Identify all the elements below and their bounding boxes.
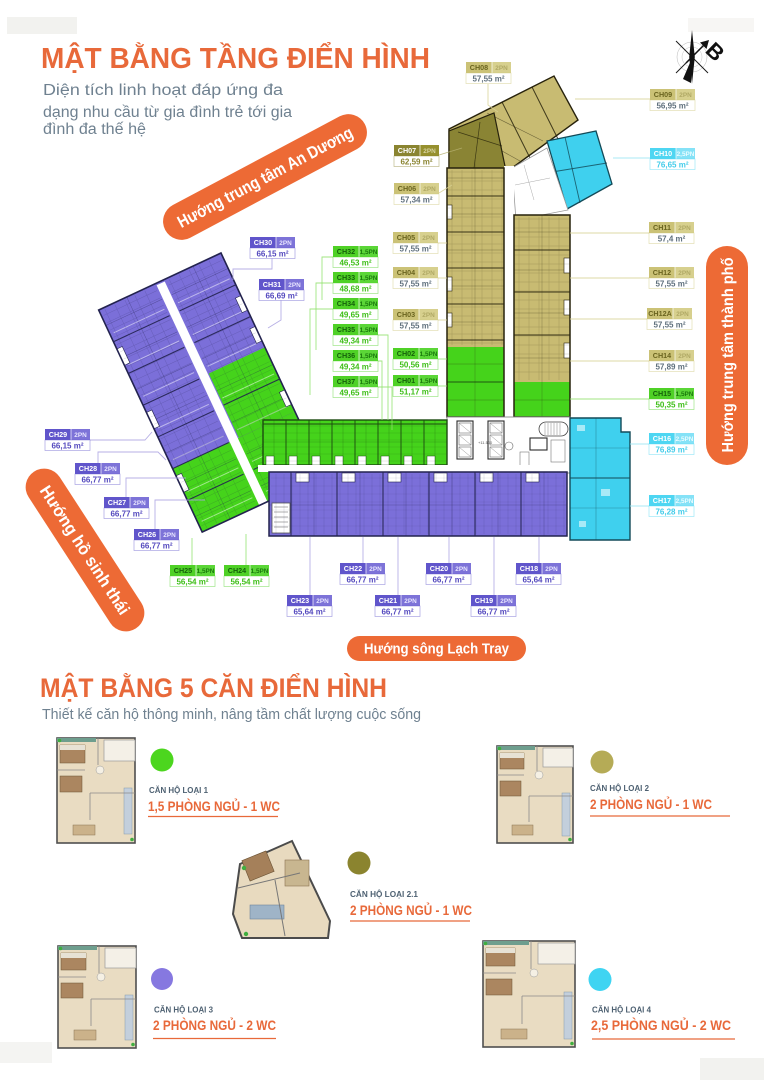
svg-text:57,55 m²: 57,55 m² <box>399 244 431 253</box>
svg-text:66,77 m²: 66,77 m² <box>346 575 378 584</box>
svg-text:CH36: CH36 <box>337 351 355 360</box>
svg-text:2 PHÒNG NGỦ - 1 WC: 2 PHÒNG NGỦ - 1 WC <box>590 795 712 812</box>
svg-text:CH19: CH19 <box>475 596 493 605</box>
svg-text:62,59 m²: 62,59 m² <box>400 157 432 166</box>
svg-text:57,55 m²: 57,55 m² <box>655 279 687 288</box>
svg-text:2,5 PHÒNG NGỦ - 2 WC: 2,5 PHÒNG NGỦ - 2 WC <box>591 1016 731 1033</box>
svg-text:2PN: 2PN <box>133 500 146 507</box>
svg-text:2PN: 2PN <box>422 312 435 319</box>
svg-text:CĂN HỘ LOẠI 4: CĂN HỘ LOẠI 4 <box>592 1004 651 1015</box>
svg-text:66,15 m²: 66,15 m² <box>51 441 83 450</box>
svg-text:49,65 m²: 49,65 m² <box>339 310 371 319</box>
svg-text:2,5PN: 2,5PN <box>676 498 694 505</box>
svg-text:76,28 m²: 76,28 m² <box>655 507 687 516</box>
svg-text:CH37: CH37 <box>337 377 355 386</box>
svg-text:2PN: 2PN <box>288 282 301 289</box>
svg-text:66,77 m²: 66,77 m² <box>381 607 413 616</box>
svg-text:CH22: CH22 <box>344 564 362 573</box>
svg-text:2PN: 2PN <box>545 566 558 573</box>
svg-text:2PN: 2PN <box>678 225 691 232</box>
svg-text:2PN: 2PN <box>369 566 382 573</box>
svg-text:2PN: 2PN <box>104 466 117 473</box>
svg-text:CH29: CH29 <box>49 430 67 439</box>
svg-text:Hướng trung tâm An Dương: Hướng trung tâm An Dương <box>174 123 356 232</box>
svg-text:CH07: CH07 <box>398 146 416 155</box>
svg-text:51,17 m²: 51,17 m² <box>399 387 431 396</box>
svg-text:CH01: CH01 <box>397 376 415 385</box>
svg-text:CH03: CH03 <box>397 310 415 319</box>
svg-text:CH02: CH02 <box>397 349 415 358</box>
svg-text:CH12: CH12 <box>653 268 671 277</box>
svg-text:CH10: CH10 <box>654 149 672 158</box>
svg-text:CH17: CH17 <box>653 496 671 505</box>
svg-text:2PN: 2PN <box>678 353 691 360</box>
svg-text:65,64 m²: 65,64 m² <box>293 607 325 616</box>
svg-text:2,5PN: 2,5PN <box>676 436 694 443</box>
svg-text:2PN: 2PN <box>423 186 436 193</box>
svg-text:49,34 m²: 49,34 m² <box>339 336 371 345</box>
svg-text:Hướng trung tâm thành phố: Hướng trung tâm thành phố <box>720 257 737 452</box>
svg-text:1,5PN: 1,5PN <box>197 568 215 575</box>
svg-text:CH23: CH23 <box>291 596 309 605</box>
svg-text:CH20: CH20 <box>430 564 448 573</box>
svg-text:2PN: 2PN <box>495 65 508 72</box>
svg-text:57,89 m²: 57,89 m² <box>655 362 687 371</box>
svg-text:2PN: 2PN <box>279 240 292 247</box>
svg-text:49,34 m²: 49,34 m² <box>339 362 371 371</box>
svg-text:CH05: CH05 <box>397 233 415 242</box>
svg-text:1,5PN: 1,5PN <box>676 391 694 398</box>
svg-text:57,55 m²: 57,55 m² <box>399 279 431 288</box>
svg-text:66,77 m²: 66,77 m² <box>110 509 142 518</box>
svg-text:CH18: CH18 <box>520 564 538 573</box>
svg-text:76,65 m²: 76,65 m² <box>656 160 688 169</box>
svg-text:57,55 m²: 57,55 m² <box>399 321 431 330</box>
svg-text:CH25: CH25 <box>174 566 192 575</box>
svg-text:1,5PN: 1,5PN <box>360 249 378 256</box>
svg-text:CĂN HỘ LOẠI 2.1: CĂN HỘ LOẠI 2.1 <box>350 888 418 899</box>
svg-text:56,54 m²: 56,54 m² <box>176 577 208 586</box>
svg-text:66,77 m²: 66,77 m² <box>477 607 509 616</box>
svg-text:1,5 PHÒNG NGỦ - 1 WC: 1,5 PHÒNG NGỦ - 1 WC <box>148 797 280 814</box>
svg-text:66,77 m²: 66,77 m² <box>140 541 172 550</box>
svg-text:49,65 m²: 49,65 m² <box>339 388 371 397</box>
svg-text:57,34 m²: 57,34 m² <box>400 195 432 204</box>
svg-text:2PN: 2PN <box>74 432 87 439</box>
svg-text:Diện tích linh hoạt đáp ứng đa: Diện tích linh hoạt đáp ứng đa <box>43 82 283 99</box>
svg-text:CĂN HỘ LOẠI 3: CĂN HỘ LOẠI 3 <box>154 1004 213 1015</box>
svg-text:CH31: CH31 <box>263 280 281 289</box>
svg-text:2PN: 2PN <box>455 566 468 573</box>
svg-text:CH06: CH06 <box>398 184 416 193</box>
svg-text:CH21: CH21 <box>379 596 397 605</box>
svg-text:1,5PN: 1,5PN <box>420 378 438 385</box>
svg-text:48,68 m²: 48,68 m² <box>339 284 371 293</box>
svg-text:CH34: CH34 <box>337 299 355 308</box>
svg-text:Thiết kế căn hộ thông minh, nâ: Thiết kế căn hộ thông minh, nâng tầm chấ… <box>42 707 421 723</box>
svg-text:MẬT BẰNG 5 CĂN ĐIỂN HÌNH: MẬT BẰNG 5 CĂN ĐIỂN HÌNH <box>40 673 387 703</box>
svg-text:2PN: 2PN <box>422 270 435 277</box>
svg-text:2 PHÒNG NGỦ - 1 WC: 2 PHÒNG NGỦ - 1 WC <box>350 901 472 918</box>
svg-text:66,77 m²: 66,77 m² <box>432 575 464 584</box>
svg-text:Hướng sông Lạch Tray: Hướng sông Lạch Tray <box>364 641 510 658</box>
svg-text:66,69 m²: 66,69 m² <box>265 291 297 300</box>
svg-text:2PN: 2PN <box>163 532 176 539</box>
svg-text:2,5PN: 2,5PN <box>677 151 695 158</box>
svg-text:CH35: CH35 <box>337 325 355 334</box>
svg-text:57,4 m²: 57,4 m² <box>658 234 686 243</box>
svg-text:CH33: CH33 <box>337 273 355 282</box>
svg-text:50,35 m²: 50,35 m² <box>655 400 687 409</box>
svg-text:56,54 m²: 56,54 m² <box>230 577 262 586</box>
svg-text:1,5PN: 1,5PN <box>360 379 378 386</box>
svg-text:CH15: CH15 <box>653 389 671 398</box>
svg-text:CH28: CH28 <box>79 464 97 473</box>
svg-text:66,77 m²: 66,77 m² <box>81 475 113 484</box>
svg-text:1,5PN: 1,5PN <box>360 301 378 308</box>
svg-text:2PN: 2PN <box>404 598 417 605</box>
svg-text:CH30: CH30 <box>254 238 272 247</box>
svg-text:56,95 m²: 56,95 m² <box>656 101 688 110</box>
svg-text:57,55 m²: 57,55 m² <box>653 320 685 329</box>
svg-text:2PN: 2PN <box>678 270 691 277</box>
svg-text:66,15 m²: 66,15 m² <box>256 249 288 258</box>
svg-text:CH11: CH11 <box>653 223 671 232</box>
svg-text:1,5PN: 1,5PN <box>420 351 438 358</box>
svg-text:CH08: CH08 <box>470 63 488 72</box>
svg-text:CH14: CH14 <box>653 351 671 360</box>
svg-text:2PN: 2PN <box>316 598 329 605</box>
svg-text:1,5PN: 1,5PN <box>251 568 269 575</box>
svg-text:CH16: CH16 <box>653 434 671 443</box>
svg-text:dạng nhu cầu từ gia đình trẻ t: dạng nhu cầu từ gia đình trẻ tới gia <box>43 104 292 121</box>
svg-text:76,89 m²: 76,89 m² <box>655 445 687 454</box>
svg-text:CH09: CH09 <box>654 90 672 99</box>
svg-text:1,5PN: 1,5PN <box>360 327 378 334</box>
svg-text:1,5PN: 1,5PN <box>360 353 378 360</box>
svg-text:CĂN HỘ LOẠI 2: CĂN HỘ LOẠI 2 <box>590 782 649 793</box>
svg-text:2PN: 2PN <box>423 148 436 155</box>
svg-text:2PN: 2PN <box>679 92 692 99</box>
svg-text:50,56 m²: 50,56 m² <box>399 360 431 369</box>
svg-text:2 PHÒNG NGỦ - 2 WC: 2 PHÒNG NGỦ - 2 WC <box>153 1016 276 1033</box>
svg-text:2PN: 2PN <box>676 311 689 318</box>
svg-text:2PN: 2PN <box>500 598 513 605</box>
svg-text:65,64 m²: 65,64 m² <box>522 575 554 584</box>
svg-text:CĂN HỘ LOẠI 1: CĂN HỘ LOẠI 1 <box>149 784 208 795</box>
svg-text:CH27: CH27 <box>108 498 126 507</box>
svg-text:1,5PN: 1,5PN <box>360 275 378 282</box>
svg-text:CH24: CH24 <box>228 566 246 575</box>
svg-text:2PN: 2PN <box>422 235 435 242</box>
svg-text:+11.560: +11.560 <box>478 440 493 445</box>
svg-text:CH26: CH26 <box>138 530 156 539</box>
svg-text:46,53 m²: 46,53 m² <box>339 258 371 267</box>
svg-text:CH32: CH32 <box>337 247 355 256</box>
svg-text:CH12A: CH12A <box>648 309 672 318</box>
svg-text:57,55 m²: 57,55 m² <box>472 74 504 83</box>
svg-text:MẬT BẰNG TẦNG ĐIỂN HÌNH: MẬT BẰNG TẦNG ĐIỂN HÌNH <box>41 41 430 75</box>
svg-text:đình đa thế hệ: đình đa thế hệ <box>43 121 146 138</box>
svg-text:CH04: CH04 <box>397 268 415 277</box>
